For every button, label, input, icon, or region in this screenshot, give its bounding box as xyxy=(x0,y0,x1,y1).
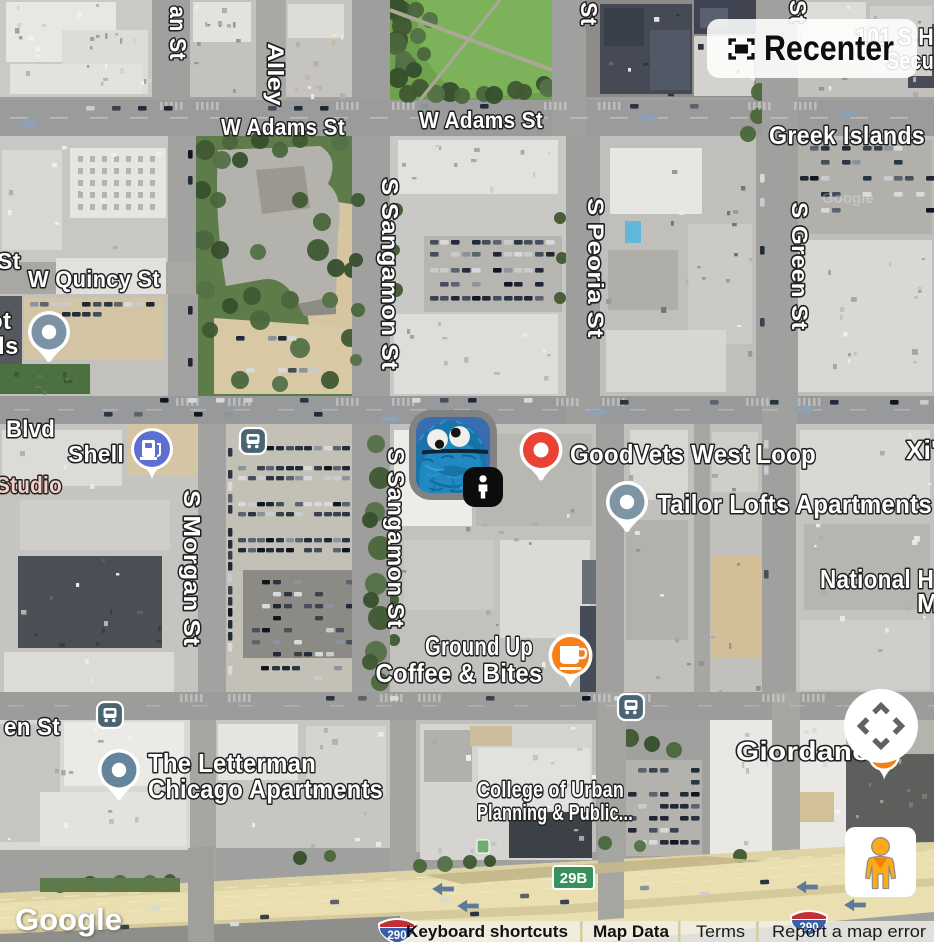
svg-text:Blvd: Blvd xyxy=(6,416,55,443)
svg-text:ot: ot xyxy=(0,308,11,335)
svg-text:Studio: Studio xyxy=(0,472,62,498)
svg-text:Map Data: Map Data xyxy=(593,923,670,941)
svg-text:Recenter: Recenter xyxy=(764,29,894,68)
svg-text:Coffee & Bites: Coffee & Bites xyxy=(376,658,543,688)
svg-text:Alley: Alley xyxy=(263,43,288,107)
svg-text:S Morgan St: S Morgan St xyxy=(179,490,205,646)
svg-text:Xi'a: Xi'a xyxy=(906,435,934,465)
svg-text:en St: en St xyxy=(4,714,60,741)
svg-text:Terms: Terms xyxy=(696,923,745,941)
svg-text:Ground Up: Ground Up xyxy=(425,631,533,661)
svg-text:St: St xyxy=(0,248,21,274)
svg-text:S Peoria St: S Peoria St xyxy=(583,198,608,338)
svg-text:Greek Islands: Greek Islands xyxy=(769,122,925,150)
svg-text:College of Urban: College of Urban xyxy=(477,777,624,802)
svg-text:Shell: Shell xyxy=(68,441,124,467)
svg-text:an St: an St xyxy=(165,6,191,60)
svg-text:W Adams St: W Adams St xyxy=(221,114,345,140)
svg-text:ls: ls xyxy=(0,333,19,360)
svg-text:Tailor Lofts Apartments: Tailor Lofts Apartments xyxy=(657,489,932,519)
svg-text:Chicago Apartments: Chicago Apartments xyxy=(148,774,383,804)
svg-text:Report a map error: Report a map error xyxy=(772,923,927,941)
svg-text:29B: 29B xyxy=(560,870,588,887)
svg-text:S Green St: S Green St xyxy=(787,202,812,330)
svg-text:W Adams St: W Adams St xyxy=(419,107,543,133)
svg-text:Planning & Public...: Planning & Public... xyxy=(477,800,633,825)
svg-text:Google: Google xyxy=(822,190,874,207)
svg-text:Google: Google xyxy=(15,902,122,937)
svg-text:St: St xyxy=(576,2,602,26)
svg-text:290: 290 xyxy=(387,930,406,942)
svg-text:M: M xyxy=(917,588,934,618)
svg-text:S Sangamon St: S Sangamon St xyxy=(377,178,403,370)
svg-text:GoodVets West Loop: GoodVets West Loop xyxy=(570,439,816,469)
svg-text:W Quincy St: W Quincy St xyxy=(28,266,160,292)
svg-text:S Sangamon St: S Sangamon St xyxy=(383,448,409,628)
svg-text:Keyboard shortcuts: Keyboard shortcuts xyxy=(406,923,568,941)
